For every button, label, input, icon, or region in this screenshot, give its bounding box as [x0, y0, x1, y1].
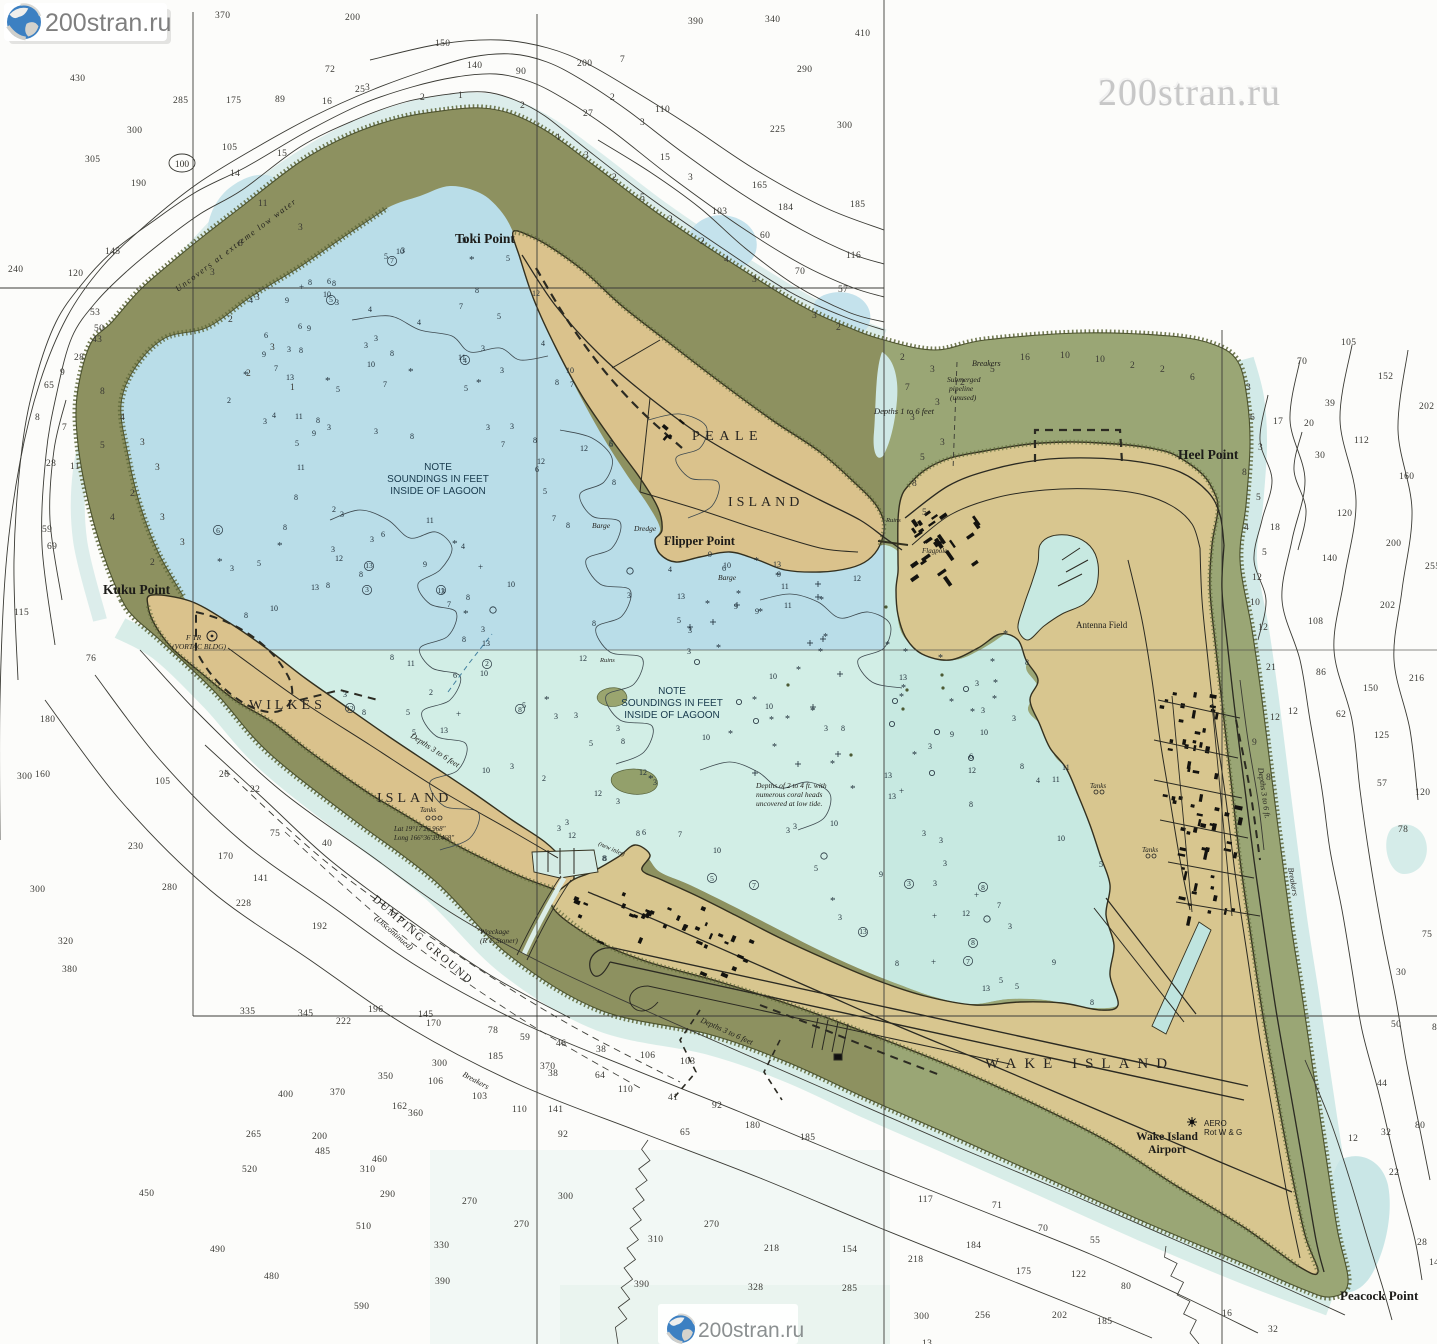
svg-text:*: * — [938, 653, 943, 664]
svg-text:*: * — [993, 678, 998, 689]
svg-text:3: 3 — [627, 591, 631, 600]
svg-text:3: 3 — [510, 422, 514, 431]
svg-text:12: 12 — [335, 554, 343, 563]
svg-text:2: 2 — [228, 315, 233, 325]
svg-text:9: 9 — [285, 296, 289, 305]
svg-text:7: 7 — [678, 830, 682, 839]
svg-text:390: 390 — [688, 17, 703, 27]
svg-text:8: 8 — [35, 413, 40, 423]
svg-text:3: 3 — [270, 343, 275, 353]
svg-text:F TR: F TR — [185, 633, 202, 642]
svg-text:+: + — [899, 786, 904, 796]
svg-text:ISLAND: ISLAND — [728, 495, 803, 510]
svg-text:360: 360 — [408, 1109, 423, 1119]
svg-text:3: 3 — [981, 706, 985, 715]
svg-text:28: 28 — [46, 459, 56, 469]
svg-text:170: 170 — [218, 852, 233, 862]
svg-text:9: 9 — [950, 730, 954, 739]
svg-text:*: * — [1003, 629, 1008, 640]
svg-text:225: 225 — [770, 125, 785, 135]
svg-text:16: 16 — [1222, 1309, 1232, 1319]
svg-text:3: 3 — [486, 423, 490, 432]
svg-text:6: 6 — [642, 828, 646, 837]
svg-text:38: 38 — [548, 1069, 558, 1079]
svg-text:+: + — [932, 911, 937, 921]
svg-text:330: 330 — [434, 1241, 449, 1251]
svg-text:44: 44 — [1377, 1079, 1387, 1089]
svg-text:3: 3 — [370, 535, 374, 544]
svg-text:10: 10 — [713, 846, 721, 855]
svg-text:3: 3 — [364, 341, 368, 350]
svg-text:5: 5 — [1015, 982, 1019, 991]
svg-text:43: 43 — [92, 335, 102, 345]
svg-text:2: 2 — [1130, 361, 1135, 371]
svg-text:85: 85 — [1432, 1023, 1437, 1033]
svg-text:12: 12 — [532, 289, 540, 298]
svg-text:13: 13 — [773, 560, 781, 569]
svg-text:Long 166°36'39.468": Long 166°36'39.468" — [393, 834, 454, 842]
svg-text:8: 8 — [294, 493, 298, 502]
svg-text:3: 3 — [365, 585, 369, 594]
svg-text:3: 3 — [481, 344, 485, 353]
svg-text:*: * — [885, 640, 890, 651]
svg-text:11: 11 — [407, 659, 415, 668]
svg-text:3: 3 — [1258, 443, 1263, 453]
svg-text:17: 17 — [1273, 417, 1283, 427]
svg-text:*: * — [758, 607, 763, 618]
svg-text:+: + — [456, 709, 461, 719]
svg-text:3: 3 — [160, 513, 165, 523]
svg-text:152: 152 — [1378, 372, 1393, 382]
svg-text:PEALE: PEALE — [692, 429, 763, 444]
svg-text:9: 9 — [423, 560, 427, 569]
svg-text:5: 5 — [999, 976, 1003, 985]
svg-text:5: 5 — [1099, 860, 1103, 869]
svg-text:20: 20 — [1304, 419, 1314, 429]
svg-text:3: 3 — [510, 762, 514, 771]
svg-text:3: 3 — [933, 879, 937, 888]
svg-text:*: * — [912, 750, 917, 761]
svg-text:1: 1 — [556, 133, 561, 143]
svg-text:14: 14 — [230, 169, 240, 179]
svg-text:12: 12 — [853, 574, 861, 583]
svg-text:*: * — [452, 538, 458, 550]
svg-text:3: 3 — [574, 711, 578, 720]
svg-text:2: 2 — [700, 237, 705, 247]
svg-text:5: 5 — [100, 441, 105, 451]
svg-text:350: 350 — [378, 1072, 393, 1082]
svg-text:8: 8 — [1090, 998, 1094, 1007]
svg-text:*: * — [785, 714, 790, 725]
svg-text:11: 11 — [458, 353, 466, 362]
svg-text:328: 328 — [748, 1283, 763, 1293]
svg-text:NOTE: NOTE — [658, 686, 686, 697]
svg-text:8: 8 — [636, 829, 640, 838]
svg-text:228: 228 — [236, 899, 251, 909]
svg-text:1: 1 — [458, 91, 463, 101]
svg-text:Kuku Point: Kuku Point — [103, 582, 171, 597]
svg-text:*: * — [463, 608, 469, 620]
svg-text:2: 2 — [332, 505, 336, 514]
svg-text:Flipper Point: Flipper Point — [664, 534, 736, 548]
svg-text:10: 10 — [980, 728, 988, 737]
svg-text:5: 5 — [677, 616, 681, 625]
svg-text:105: 105 — [1341, 338, 1356, 348]
svg-text:202: 202 — [1052, 1311, 1067, 1321]
svg-text:3: 3 — [940, 438, 945, 448]
svg-text:3: 3 — [688, 173, 693, 183]
svg-text:80: 80 — [1121, 1282, 1131, 1292]
svg-text:10: 10 — [323, 290, 331, 299]
svg-text:184: 184 — [778, 203, 793, 213]
svg-text:185: 185 — [1097, 1317, 1112, 1327]
svg-text:103: 103 — [680, 1057, 695, 1067]
svg-text:184: 184 — [966, 1241, 981, 1251]
svg-text:8: 8 — [100, 387, 105, 397]
svg-text:70: 70 — [795, 267, 805, 277]
svg-text:70: 70 — [1038, 1224, 1048, 1234]
svg-text:13: 13 — [286, 373, 294, 382]
svg-text:16: 16 — [1020, 353, 1030, 363]
svg-text:4: 4 — [541, 339, 545, 348]
svg-text:3: 3 — [255, 293, 260, 303]
svg-text:11: 11 — [295, 412, 303, 421]
svg-text:8: 8 — [462, 635, 466, 644]
svg-text:10: 10 — [367, 360, 375, 369]
svg-text:200stran.ru: 200stran.ru — [698, 1319, 804, 1342]
svg-text:*: * — [325, 375, 331, 387]
svg-text:112: 112 — [1354, 436, 1369, 446]
svg-text:4: 4 — [1244, 523, 1249, 533]
svg-text:270: 270 — [704, 1220, 719, 1230]
svg-text:Rot W & G: Rot W & G — [1204, 1128, 1242, 1137]
svg-text:SOUNDINGS IN FEET: SOUNDINGS IN FEET — [387, 474, 489, 485]
svg-text:65: 65 — [44, 381, 54, 391]
svg-text:AERO: AERO — [1204, 1119, 1227, 1128]
svg-text:3: 3 — [1246, 383, 1251, 393]
svg-text:13: 13 — [677, 592, 685, 601]
svg-text:13: 13 — [884, 771, 892, 780]
svg-text:38: 38 — [596, 1045, 606, 1055]
svg-text:50: 50 — [94, 324, 104, 334]
svg-text:590: 590 — [354, 1302, 369, 1312]
svg-text:11: 11 — [297, 463, 305, 472]
svg-text:10: 10 — [480, 669, 488, 678]
svg-text:7: 7 — [570, 380, 574, 389]
svg-text:*: * — [772, 742, 777, 753]
svg-text:Barge: Barge — [592, 521, 611, 530]
svg-text:12: 12 — [1348, 1134, 1358, 1144]
svg-text:5: 5 — [640, 193, 645, 203]
svg-text:59: 59 — [520, 1033, 530, 1043]
svg-text:345: 345 — [298, 1009, 313, 1019]
svg-text:12: 12 — [1252, 573, 1262, 583]
svg-text:10: 10 — [765, 702, 773, 711]
svg-text:170: 170 — [426, 1019, 441, 1029]
svg-text:8: 8 — [912, 479, 917, 489]
svg-text:180: 180 — [745, 1121, 760, 1131]
svg-text:320: 320 — [58, 937, 73, 947]
svg-text:13: 13 — [888, 792, 896, 801]
svg-text:115: 115 — [14, 608, 29, 618]
svg-text:92: 92 — [558, 1130, 568, 1140]
svg-text:12: 12 — [537, 457, 545, 466]
svg-text:3: 3 — [907, 879, 911, 888]
svg-text:*: * — [716, 643, 721, 654]
svg-text:3: 3 — [557, 824, 561, 833]
svg-text:Peacock Point: Peacock Point — [1340, 1288, 1419, 1303]
svg-text:490: 490 — [210, 1245, 225, 1255]
svg-text:27: 27 — [583, 109, 593, 119]
svg-text:116: 116 — [846, 251, 861, 261]
svg-text:22: 22 — [1389, 1168, 1399, 1178]
svg-text:8: 8 — [612, 478, 616, 487]
svg-text:22: 22 — [250, 785, 260, 795]
svg-text:370: 370 — [330, 1088, 345, 1098]
svg-text:300: 300 — [30, 885, 45, 895]
svg-text:12: 12 — [568, 831, 576, 840]
svg-text:141: 141 — [548, 1105, 563, 1115]
svg-text:3: 3 — [365, 83, 370, 93]
svg-text:4: 4 — [272, 411, 276, 420]
svg-text:200: 200 — [345, 13, 360, 23]
svg-text:65: 65 — [680, 1128, 690, 1138]
svg-text:10: 10 — [1060, 351, 1070, 361]
svg-text:3: 3 — [343, 690, 347, 699]
svg-text:117: 117 — [918, 1195, 933, 1205]
svg-text:13: 13 — [899, 673, 907, 682]
svg-text:6: 6 — [264, 331, 268, 340]
svg-text:8: 8 — [566, 521, 570, 530]
svg-text:202: 202 — [1380, 601, 1395, 611]
svg-text:185: 185 — [800, 1133, 815, 1143]
svg-text:6: 6 — [327, 277, 331, 286]
svg-text:90: 90 — [516, 67, 526, 77]
svg-text:NOTE: NOTE — [424, 462, 452, 473]
svg-text:9: 9 — [312, 429, 316, 438]
svg-text:*: * — [949, 697, 954, 708]
svg-text:5: 5 — [920, 453, 925, 463]
svg-text:Wreckage: Wreckage — [480, 927, 510, 936]
svg-text:162: 162 — [392, 1102, 407, 1112]
svg-text:7: 7 — [447, 600, 451, 609]
svg-text:2: 2 — [227, 396, 231, 405]
svg-text:7: 7 — [459, 302, 463, 311]
svg-text:WILKES: WILKES — [249, 698, 326, 713]
svg-text:300: 300 — [432, 1059, 447, 1069]
svg-text:8: 8 — [621, 737, 625, 746]
svg-text:8: 8 — [518, 705, 522, 714]
svg-text:218: 218 — [908, 1255, 923, 1265]
svg-text:32: 32 — [1268, 1325, 1278, 1335]
svg-text:2: 2 — [836, 323, 841, 333]
svg-text:7: 7 — [966, 957, 970, 966]
svg-text:2: 2 — [150, 558, 155, 568]
svg-text:5: 5 — [589, 739, 593, 748]
svg-text:8: 8 — [981, 883, 985, 892]
svg-text:11: 11 — [426, 516, 434, 525]
svg-text:3: 3 — [565, 818, 569, 827]
svg-text:*: * — [476, 377, 482, 389]
svg-text:8: 8 — [362, 708, 366, 717]
svg-text:Antenna Field: Antenna Field — [1076, 620, 1128, 630]
svg-text:390: 390 — [435, 1277, 450, 1287]
svg-text:7: 7 — [752, 881, 756, 890]
svg-text:uncovered at low tide.: uncovered at low tide. — [756, 799, 822, 808]
svg-text:8: 8 — [299, 346, 303, 355]
svg-text:Depths of 2 to 4 ft. with: Depths of 2 to 4 ft. with — [755, 781, 827, 790]
svg-text:510: 510 — [356, 1222, 371, 1232]
svg-text:8: 8 — [1025, 658, 1029, 667]
svg-text:Tanks: Tanks — [420, 806, 436, 814]
svg-text:240: 240 — [8, 265, 23, 275]
svg-text:*: * — [736, 589, 741, 600]
svg-text:*: * — [217, 556, 223, 568]
svg-text:26: 26 — [219, 770, 229, 780]
svg-text:110: 110 — [655, 105, 670, 115]
svg-text:8: 8 — [533, 436, 537, 445]
svg-text:15: 15 — [660, 153, 670, 163]
svg-text:Ruins: Ruins — [599, 657, 615, 664]
svg-text:8: 8 — [359, 570, 363, 579]
svg-text:21: 21 — [1266, 663, 1276, 673]
svg-text:230: 230 — [128, 842, 143, 852]
svg-text:265: 265 — [246, 1130, 261, 1140]
svg-text:Breakers: Breakers — [972, 359, 1001, 368]
svg-text:270: 270 — [514, 1220, 529, 1230]
svg-text:285: 285 — [173, 96, 188, 106]
svg-text:9: 9 — [307, 324, 311, 333]
svg-text:12: 12 — [346, 704, 354, 713]
svg-text:*: * — [754, 556, 759, 567]
svg-text:12: 12 — [962, 909, 970, 918]
svg-text:11: 11 — [70, 462, 80, 472]
svg-text:62: 62 — [1336, 710, 1346, 720]
svg-text:290: 290 — [380, 1190, 395, 1200]
svg-text:*: * — [903, 647, 908, 658]
svg-text:Lat 19°17'26.968": Lat 19°17'26.968" — [393, 825, 446, 833]
svg-text:12: 12 — [594, 789, 602, 798]
svg-text:12: 12 — [639, 768, 647, 777]
svg-text:400: 400 — [278, 1090, 293, 1100]
svg-text:Heel Point: Heel Point — [1178, 447, 1239, 462]
svg-text:2: 2 — [900, 353, 905, 363]
svg-text:39: 39 — [1325, 399, 1335, 409]
svg-text:80: 80 — [1415, 1121, 1425, 1131]
svg-text:4: 4 — [668, 565, 672, 574]
svg-text:3: 3 — [653, 778, 657, 787]
svg-text:Depths 1 to 6 feet: Depths 1 to 6 feet — [873, 406, 935, 416]
svg-text:120: 120 — [1415, 788, 1430, 798]
svg-text:*: * — [705, 599, 710, 610]
svg-text:7: 7 — [905, 383, 910, 393]
svg-text:5: 5 — [1262, 548, 1267, 558]
svg-text:216: 216 — [1409, 674, 1424, 684]
svg-text:9: 9 — [879, 870, 883, 879]
svg-text:5: 5 — [257, 559, 261, 568]
svg-text:103: 103 — [712, 207, 727, 217]
svg-text:8: 8 — [316, 416, 320, 425]
svg-text:202: 202 — [1419, 402, 1434, 412]
svg-text:6: 6 — [969, 752, 973, 761]
svg-text:71: 71 — [992, 1201, 1002, 1211]
svg-text:140: 140 — [1322, 554, 1337, 564]
svg-text:Tanks: Tanks — [1142, 846, 1158, 854]
svg-text:8: 8 — [971, 938, 975, 947]
svg-text:8: 8 — [326, 581, 330, 590]
svg-text:INSIDE OF LAGOON: INSIDE OF LAGOON — [390, 486, 486, 497]
svg-text:4: 4 — [110, 513, 115, 523]
svg-text:2: 2 — [520, 101, 525, 111]
svg-text:Airport: Airport — [1148, 1144, 1186, 1156]
svg-text:8: 8 — [555, 378, 559, 387]
svg-text:105: 105 — [155, 777, 170, 787]
svg-text:10: 10 — [1057, 834, 1065, 843]
svg-text:285: 285 — [842, 1284, 857, 1294]
svg-text:INSIDE OF LAGOON: INSIDE OF LAGOON — [624, 710, 720, 721]
svg-text:340: 340 — [765, 15, 780, 25]
svg-text:200: 200 — [1386, 539, 1401, 549]
svg-text:122: 122 — [1071, 1270, 1086, 1280]
svg-text:460: 460 — [372, 1155, 387, 1165]
svg-text:5: 5 — [464, 384, 468, 393]
svg-text:185: 185 — [850, 200, 865, 210]
svg-text:numerous coral heads: numerous coral heads — [756, 790, 822, 799]
svg-text:2: 2 — [610, 93, 615, 103]
svg-text:110: 110 — [512, 1105, 527, 1115]
svg-text:7: 7 — [620, 55, 625, 65]
svg-text:6: 6 — [1250, 413, 1255, 423]
svg-text:*: * — [830, 759, 835, 770]
svg-text:3: 3 — [812, 311, 817, 321]
svg-text:3: 3 — [401, 246, 405, 255]
svg-text:2: 2 — [429, 688, 433, 697]
svg-text:300: 300 — [127, 126, 142, 136]
svg-text:175: 175 — [226, 96, 241, 106]
svg-text:*: * — [970, 707, 975, 718]
svg-text:8: 8 — [332, 279, 336, 288]
svg-text:12: 12 — [1258, 623, 1268, 633]
svg-text:11: 11 — [784, 601, 792, 610]
svg-text:Flagpole: Flagpole — [921, 547, 947, 555]
svg-text:196: 196 — [368, 1005, 383, 1015]
svg-text:+: + — [299, 282, 304, 292]
svg-text:6: 6 — [609, 440, 613, 449]
svg-text:11: 11 — [258, 199, 268, 209]
svg-text:3: 3 — [687, 647, 691, 656]
svg-text:103: 103 — [472, 1092, 487, 1102]
svg-text:*: * — [992, 694, 997, 705]
svg-text:256: 256 — [975, 1311, 990, 1321]
svg-text:2: 2 — [246, 369, 251, 379]
svg-text:4: 4 — [249, 296, 253, 305]
svg-text:57: 57 — [838, 285, 848, 295]
svg-text:4: 4 — [1036, 776, 1040, 785]
svg-text:3: 3 — [374, 427, 378, 436]
svg-text:2: 2 — [1160, 365, 1165, 375]
svg-text:3: 3 — [975, 679, 979, 688]
svg-text:86: 86 — [1316, 668, 1326, 678]
svg-text:*: * — [901, 683, 906, 694]
svg-text:11: 11 — [781, 582, 789, 591]
svg-text:3: 3 — [1012, 714, 1016, 723]
svg-text:13: 13 — [482, 639, 490, 648]
svg-text:8: 8 — [475, 286, 479, 295]
svg-text:46: 46 — [556, 1039, 566, 1049]
svg-text:*: * — [544, 694, 550, 706]
svg-text:9: 9 — [262, 350, 266, 359]
svg-text:3: 3 — [793, 822, 797, 831]
